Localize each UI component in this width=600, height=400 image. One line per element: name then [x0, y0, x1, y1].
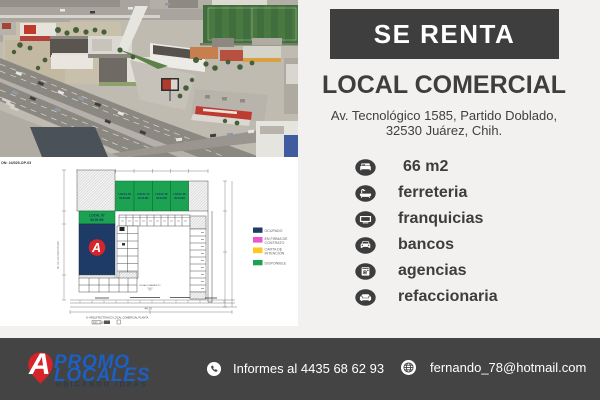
svg-text:LOCAL 06: LOCAL 06: [173, 192, 186, 196]
svg-text:A: A: [28, 348, 51, 381]
svg-text:44.10: 44.10: [145, 307, 152, 311]
svg-text:LOCAL 04: LOCAL 04: [137, 192, 150, 196]
svg-text:OCUPADO: OCUPADO: [265, 229, 283, 233]
svg-text:56.00 M2: 56.00 M2: [156, 196, 167, 200]
svg-text:LOCAL 05: LOCAL 05: [155, 192, 168, 196]
svg-text:56.00 M2: 56.00 M2: [138, 196, 149, 200]
svg-text:AV. DE LAS INDUSTRIAS: AV. DE LAS INDUSTRIAS: [57, 241, 60, 269]
svg-text:CONTRATO: CONTRATO: [265, 241, 285, 245]
svg-text:56.00 M2: 56.00 M2: [119, 196, 130, 200]
svg-text:66.00 M2: 66.00 M2: [90, 218, 104, 222]
svg-text:ON: 24/025-OP-03: ON: 24/025-OP-03: [1, 161, 31, 165]
svg-text:LOCAL 07: LOCAL 07: [89, 214, 105, 218]
svg-text:INTENCIÓN: INTENCIÓN: [265, 251, 285, 256]
svg-text:UBICANDO IDEAS: UBICANDO IDEAS: [56, 382, 148, 389]
svg-text:A- ARQUITECTONICO LOCAL COMERC: A- ARQUITECTONICO LOCAL COMERCIAL PLANTA: [86, 316, 149, 320]
svg-text:A: A: [91, 241, 101, 255]
svg-text:ESC 1:100: ESC 1:100: [93, 321, 105, 324]
svg-text:DISPONIBLE: DISPONIBLE: [265, 261, 287, 265]
svg-text:LOCAL 03: LOCAL 03: [118, 192, 131, 196]
svg-text:56.00 M2: 56.00 M2: [174, 196, 185, 200]
svg-text:ESTACIONAMIENTO: ESTACIONAMIENTO: [140, 284, 161, 287]
